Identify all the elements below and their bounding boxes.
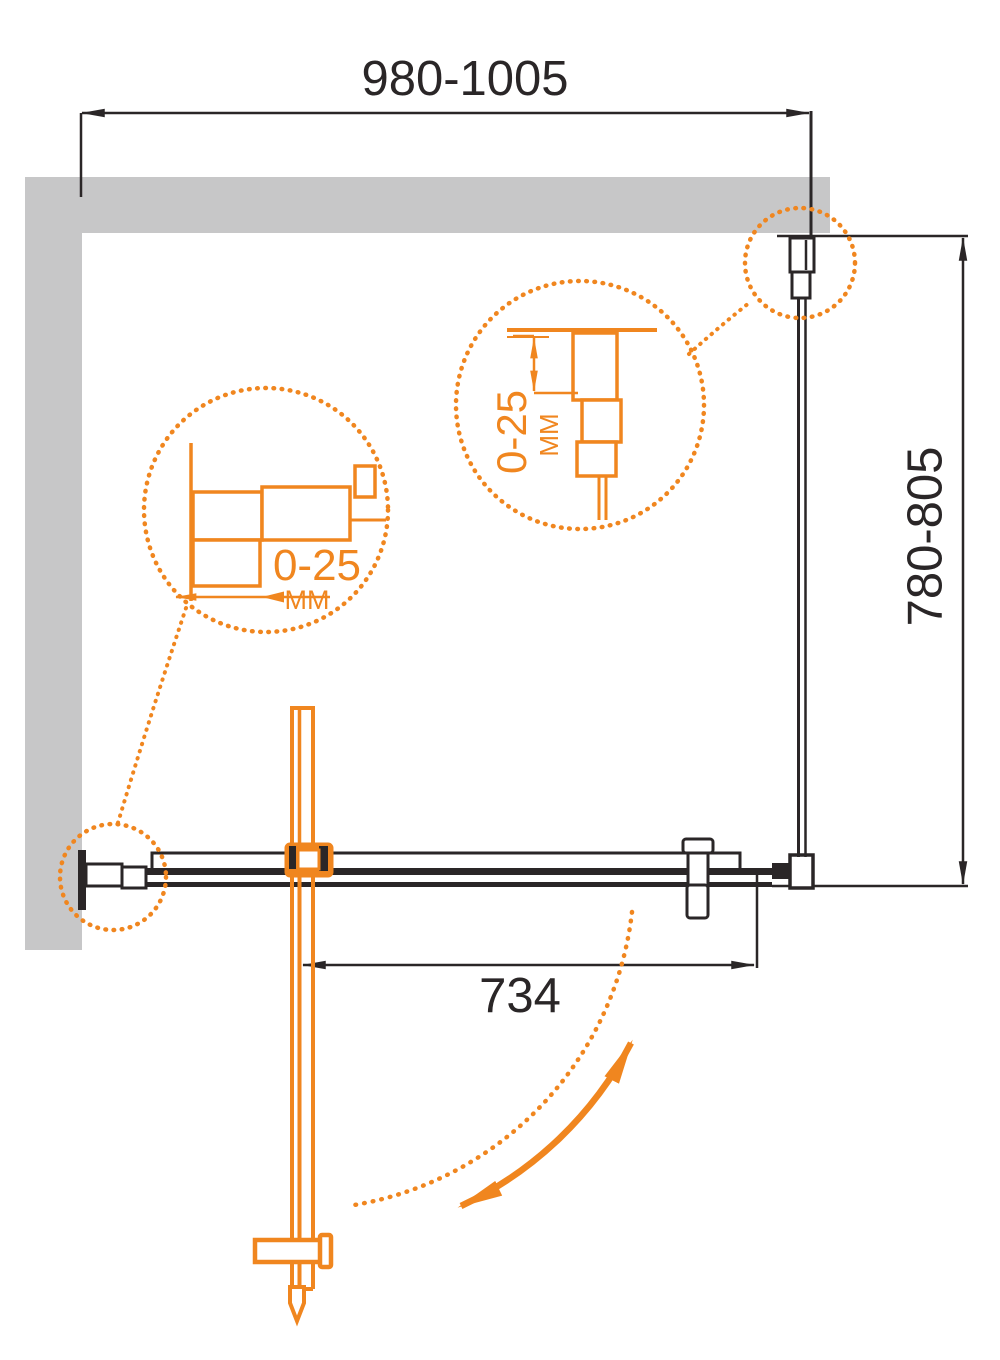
top-right-wall-profile: [790, 238, 814, 298]
door-handle: [255, 1235, 331, 1267]
fixed-panel: [85, 853, 790, 887]
callout-circles: [60, 208, 855, 930]
left-wall-profile: [78, 850, 146, 910]
wall-plan: [25, 177, 830, 950]
width-dimension-label: 980-1005: [265, 55, 665, 104]
door-dimension-label: 734: [420, 972, 620, 1021]
depth-dimension-label: 780-805: [902, 387, 951, 687]
corner-profile: [772, 855, 813, 888]
detail-top-range-label: 0-25: [491, 372, 533, 492]
detail-left-unit-label: MM: [257, 587, 357, 614]
right-panel: [799, 298, 806, 857]
drawing-graphics: [0, 0, 1000, 1360]
door-open: [290, 708, 313, 1321]
detail-left-range-label: 0-25: [256, 544, 378, 588]
door-swing: [348, 912, 632, 1206]
technical-drawing: 980-1005 780-805 734 0-25 MM 0-25 MM: [0, 0, 1000, 1360]
door-carriage: [285, 843, 333, 877]
detail-top-unit-label: MM: [536, 395, 562, 475]
knob: [683, 839, 713, 918]
